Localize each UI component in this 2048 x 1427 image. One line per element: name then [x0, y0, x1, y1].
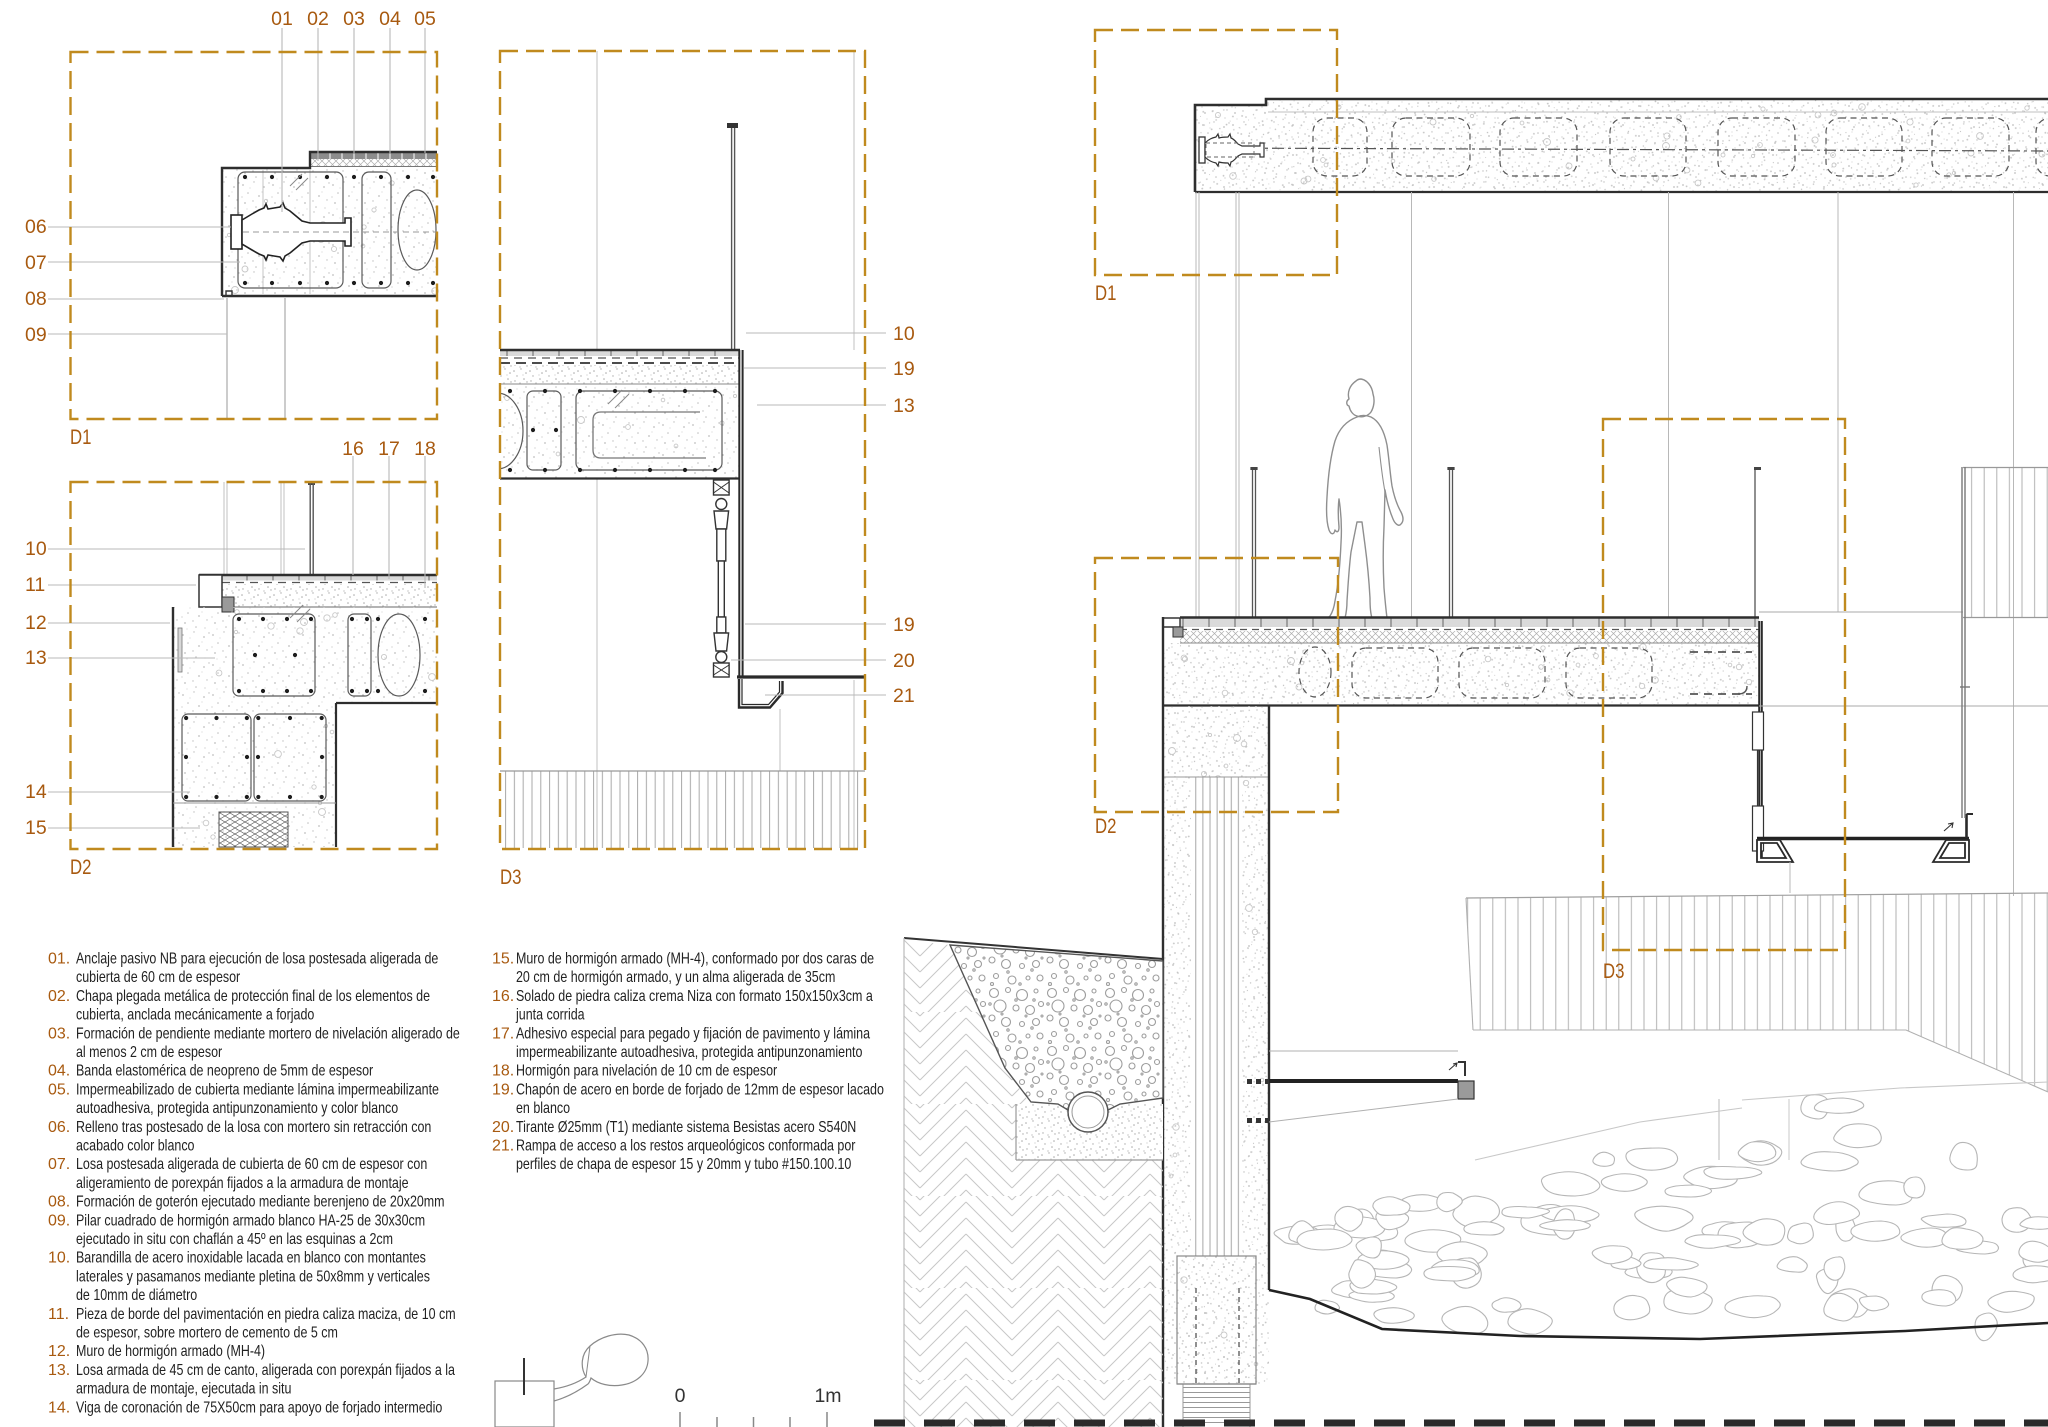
svg-text:01: 01	[271, 8, 293, 30]
svg-text:07: 07	[25, 252, 47, 274]
svg-text:Anclaje pasivo NB para ejecuci: Anclaje pasivo NB para ejecución de losa…	[76, 950, 438, 968]
svg-text:Banda elastomérica de neopreno: Banda elastomérica de neopreno de 5mm de…	[76, 1062, 373, 1080]
svg-text:Adhesivo especial para pegado: Adhesivo especial para pegado y fijación…	[516, 1025, 870, 1043]
svg-text:Relleno tras postesado de la l: Relleno tras postesado de la losa con mo…	[76, 1118, 431, 1136]
svg-text:20.: 20.	[492, 1119, 514, 1136]
svg-text:Chapón de acero en borde de fo: Chapón de acero en borde de forjado de 1…	[516, 1081, 884, 1099]
svg-text:08: 08	[25, 288, 47, 310]
svg-text:cubierta, anclada mecánicament: cubierta, anclada mecánicamente a forjad…	[76, 1006, 314, 1024]
svg-text:12.: 12.	[48, 1343, 70, 1360]
svg-text:02.: 02.	[48, 988, 70, 1005]
svg-text:en blanco: en blanco	[516, 1100, 570, 1118]
svg-text:Rampa de acceso a los restos a: Rampa de acceso a los restos arqueológic…	[516, 1137, 856, 1155]
svg-text:de 10mm de diámetro: de 10mm de diámetro	[76, 1287, 197, 1305]
svg-text:Formación de pendiente mediant: Formación de pendiente mediante mortero …	[76, 1025, 460, 1043]
svg-text:15.: 15.	[492, 951, 514, 968]
svg-text:Losa postesada aligerada de cu: Losa postesada aligerada de cubierta de …	[76, 1156, 427, 1174]
svg-text:19: 19	[893, 358, 915, 380]
svg-text:12: 12	[25, 612, 47, 634]
svg-text:09: 09	[25, 324, 47, 346]
svg-text:Pieza de borde del pavimentaci: Pieza de borde del pavimentación en pied…	[76, 1305, 456, 1323]
svg-text:18: 18	[414, 438, 436, 460]
svg-text:Viga de coronación de 75X50cm: Viga de coronación de 75X50cm para apoyo…	[76, 1399, 442, 1417]
svg-text:de espesor, sobre mortero de c: de espesor, sobre mortero de cemento de …	[76, 1324, 338, 1342]
svg-text:junta corrida: junta corrida	[515, 1006, 584, 1024]
svg-text:11.: 11.	[48, 1306, 69, 1323]
svg-text:D1: D1	[1095, 282, 1116, 305]
svg-text:01.: 01.	[48, 951, 70, 968]
svg-text:20 cm de hormigón armado, y un: 20 cm de hormigón armado, y un alma alig…	[516, 969, 835, 987]
svg-text:al menos 2 cm de espesor: al menos 2 cm de espesor	[76, 1044, 222, 1062]
svg-text:03: 03	[343, 8, 365, 30]
svg-text:11: 11	[25, 574, 45, 596]
svg-text:13: 13	[893, 395, 915, 417]
svg-text:06: 06	[25, 216, 47, 238]
svg-text:10: 10	[893, 323, 915, 345]
svg-text:21.: 21.	[492, 1138, 514, 1155]
svg-text:perfiles de chapa de espesor 1: perfiles de chapa de espesor 15 y 20mm y…	[516, 1156, 851, 1174]
svg-text:1m: 1m	[814, 1385, 841, 1407]
svg-text:15: 15	[25, 817, 47, 839]
svg-text:17: 17	[378, 438, 400, 460]
svg-text:Hormigón para nivelación de 10: Hormigón para nivelación de 10 cm de esp…	[516, 1062, 777, 1080]
svg-text:07.: 07.	[48, 1156, 70, 1173]
svg-text:13: 13	[25, 647, 47, 669]
svg-text:04.: 04.	[48, 1063, 70, 1080]
svg-text:18.: 18.	[492, 1063, 514, 1080]
svg-text:D2: D2	[70, 856, 91, 879]
svg-text:17.: 17.	[492, 1025, 514, 1042]
svg-text:Chapa plegada metálica de prot: Chapa plegada metálica de protección fin…	[76, 988, 430, 1006]
svg-text:Barandilla de acero inoxidable: Barandilla de acero inoxidable lacada en…	[76, 1249, 426, 1267]
svg-text:Muro de hormigón armado (MH-4): Muro de hormigón armado (MH-4), conforma…	[516, 950, 874, 968]
svg-text:09.: 09.	[48, 1212, 70, 1229]
svg-text:10: 10	[25, 538, 47, 560]
svg-text:acabado color blanco: acabado color blanco	[76, 1137, 195, 1155]
svg-text:21: 21	[893, 685, 915, 707]
svg-text:ejecutado in situ con chaflán: ejecutado in situ con chaflán a 45º en l…	[76, 1231, 393, 1249]
svg-text:16: 16	[342, 438, 364, 460]
svg-text:Pilar cuadrado de hormigón arm: Pilar cuadrado de hormigón armado blanco…	[76, 1212, 425, 1230]
svg-text:D1: D1	[70, 426, 91, 449]
svg-text:13.: 13.	[48, 1362, 70, 1379]
svg-text:Formación de goterón ejecutado: Formación de goterón ejecutado mediante …	[76, 1193, 445, 1211]
svg-text:cubierta de 60 cm de espesor: cubierta de 60 cm de espesor	[76, 969, 240, 987]
svg-text:06.: 06.	[48, 1119, 70, 1136]
svg-text:16.: 16.	[492, 988, 514, 1005]
svg-text:04: 04	[379, 8, 401, 30]
svg-text:laterales y pasamanos mediante: laterales y pasamanos mediante pletina d…	[76, 1268, 430, 1286]
svg-text:Solado de piedra caliza crema: Solado de piedra caliza crema Niza con f…	[516, 988, 873, 1006]
svg-text:05.: 05.	[48, 1081, 70, 1098]
svg-text:02: 02	[307, 8, 329, 30]
svg-text:19.: 19.	[492, 1081, 514, 1098]
svg-text:19: 19	[893, 614, 915, 636]
svg-text:Tirante Ø25mm (T1) mediante si: Tirante Ø25mm (T1) mediante sistema Besi…	[516, 1118, 856, 1136]
svg-text:0: 0	[675, 1385, 686, 1407]
svg-text:impermeabilizante autoadhesiva: impermeabilizante autoadhesiva, protegid…	[516, 1044, 862, 1062]
svg-text:D3: D3	[500, 866, 521, 889]
svg-text:Impermeabilizado de cubierta m: Impermeabilizado de cubierta mediante lá…	[76, 1081, 439, 1099]
svg-text:autoadhesiva, protegida antipu: autoadhesiva, protegida antipunzonamient…	[76, 1100, 398, 1118]
svg-text:14: 14	[25, 781, 47, 803]
svg-text:armadura de montaje, ejecutada: armadura de montaje, ejecutada in situ	[76, 1380, 291, 1398]
svg-text:D2: D2	[1095, 815, 1116, 838]
svg-text:aligeramiento de porexpán fija: aligeramiento de porexpán fijados a la a…	[76, 1175, 409, 1193]
svg-text:14.: 14.	[48, 1399, 70, 1416]
svg-text:10.: 10.	[48, 1250, 70, 1267]
svg-text:D3: D3	[1603, 960, 1624, 983]
svg-text:03.: 03.	[48, 1025, 70, 1042]
svg-text:05: 05	[414, 8, 436, 30]
svg-text:08.: 08.	[48, 1194, 70, 1211]
svg-text:Losa armada de 45 cm de canto,: Losa armada de 45 cm de canto, aligerada…	[76, 1362, 455, 1380]
svg-text:Muro de hormigón armado (MH-4): Muro de hormigón armado (MH-4)	[76, 1343, 265, 1361]
svg-text:20: 20	[893, 650, 915, 672]
